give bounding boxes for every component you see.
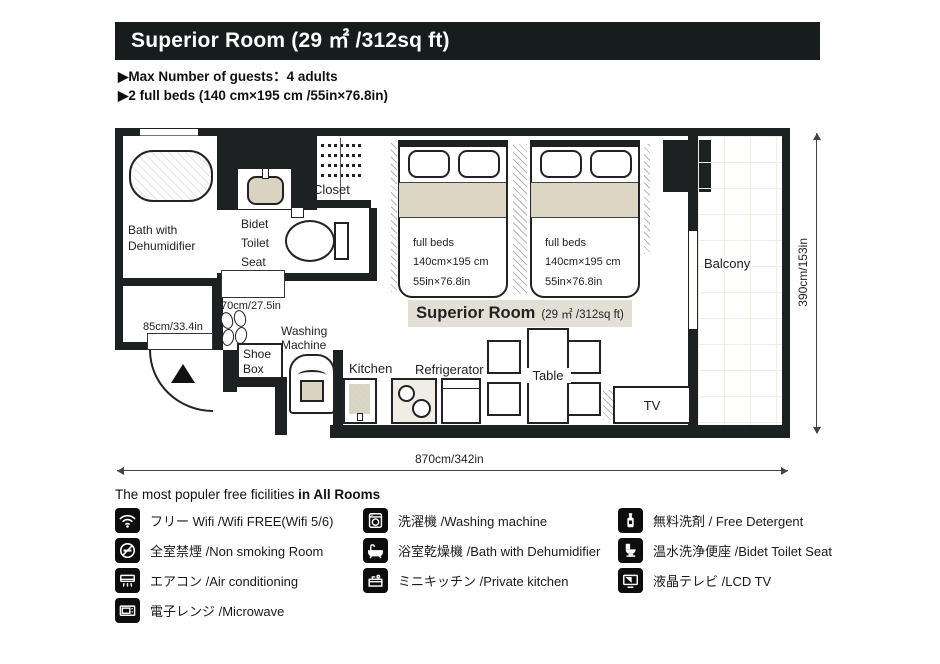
facility-label: エアコン /Air conditioning xyxy=(150,571,298,590)
hatch-strip xyxy=(391,140,397,292)
wall-segment xyxy=(313,200,371,208)
facility-item: 液晶テレビ /LCD TV xyxy=(618,565,832,595)
shoe-box: Shoe Box xyxy=(237,343,283,379)
wifi-icon xyxy=(115,508,140,533)
basin-bowl xyxy=(247,176,284,205)
pillow xyxy=(408,150,450,178)
bed-spec: full beds 140cm×195 cm 55in×76.8in xyxy=(413,234,489,292)
dimension-arrow xyxy=(117,467,124,475)
bed: full beds 140cm×195 cm 55in×76.8in xyxy=(398,140,508,298)
facility-label: 洗濯機 /Washing machine xyxy=(398,511,547,530)
pillow xyxy=(540,150,582,178)
bed: full beds 140cm×195 cm 55in×76.8in xyxy=(530,140,640,298)
wall-segment xyxy=(369,208,377,281)
closet-hangers xyxy=(321,164,361,167)
facility-label: 液晶テレビ /LCD TV xyxy=(653,571,771,590)
max-guests-text: ▶Max Number of guests：4 adults xyxy=(118,65,338,85)
facility-label: 電子レンジ /Microwave xyxy=(150,601,284,620)
width-dimension-line xyxy=(117,470,788,471)
facilities-heading-bold: in All Rooms xyxy=(298,487,380,502)
room-name-label: Superior Room (29 ㎡ /312sq ft) xyxy=(408,300,632,327)
facility-label: 温水洗浄便座 /Bidet Toilet Seat xyxy=(653,541,832,560)
wall-segment xyxy=(330,425,790,438)
bidet-room-label: Bidet Toilet Seat xyxy=(241,215,269,273)
bed-spec-line: 140cm×195 cm xyxy=(413,253,489,272)
headboard xyxy=(530,140,640,147)
wall-segment xyxy=(223,350,237,392)
tv: TV xyxy=(613,386,691,424)
wall-segment xyxy=(115,128,790,136)
facility-label: 全室禁煙 /Non smoking Room xyxy=(150,541,323,560)
balcony-label: Balcony xyxy=(704,256,750,271)
facilities-heading-normal: The most populer free ficilities xyxy=(115,487,298,502)
hatch-strip xyxy=(513,144,527,294)
wall-segment xyxy=(115,278,123,350)
no-smoking-icon xyxy=(115,538,140,563)
dimension-arrow xyxy=(813,133,821,140)
washer-basket xyxy=(300,380,324,402)
wall-segment xyxy=(782,128,790,438)
closet-hangers xyxy=(321,174,361,177)
facilities-column-2: 洗濯機 /Washing machine 浴室乾燥機 /Bath with De… xyxy=(363,505,600,595)
toilet xyxy=(285,220,335,262)
facility-item: フリー Wifi /Wifi FREE(Wifi 5/6) xyxy=(115,505,333,535)
refrigerator-label: Refrigerator xyxy=(415,362,484,377)
wall-segment xyxy=(115,128,123,286)
facility-item: 電子レンジ /Microwave xyxy=(115,595,333,625)
balcony-window xyxy=(688,231,698,329)
facility-label: フリー Wifi /Wifi FREE(Wifi 5/6) xyxy=(150,511,333,530)
washing-machine-label: Washing Machine xyxy=(281,325,341,353)
floor-plan: Bath with Dehumidifier Closet Bidet Toil… xyxy=(115,128,790,438)
bed-spec-line: full beds xyxy=(413,234,489,253)
toilet-door xyxy=(221,270,285,298)
wall-segment xyxy=(115,342,149,350)
closet-hangers xyxy=(321,154,361,157)
dimension-arrow xyxy=(781,467,788,475)
pillow xyxy=(458,150,500,178)
room-floorplan-page: Superior Room (29 ㎡ /312sq ft) ▶Max Numb… xyxy=(0,0,940,664)
air-conditioner-icon xyxy=(115,568,140,593)
bathtub xyxy=(129,150,213,202)
page-title-text: Superior Room (29 ㎡ /312sq ft) xyxy=(131,29,450,52)
entrance-arrow xyxy=(171,364,195,383)
page-title: Superior Room (29 ㎡ /312sq ft) xyxy=(115,22,820,60)
closet-hangers xyxy=(321,144,361,147)
facilities-column-1: フリー Wifi /Wifi FREE(Wifi 5/6) 全室禁煙 /Non … xyxy=(115,505,333,625)
refrigerator-door-line xyxy=(443,388,479,389)
facility-label: 無料洗剤 / Free Detergent xyxy=(653,511,803,530)
height-dimension-text: 390cm/153in xyxy=(796,238,810,307)
stove-burner xyxy=(398,385,415,402)
bed-spec: full beds 140cm×195 cm 55in×76.8in xyxy=(545,234,621,292)
facility-item: 浴室乾燥機 /Bath with Dehumidifier xyxy=(363,535,600,565)
room-name: Superior Room xyxy=(416,304,535,323)
facility-item: 温水洗浄便座 /Bidet Toilet Seat xyxy=(618,535,832,565)
height-dimension-line xyxy=(816,133,817,433)
slipper xyxy=(221,328,236,347)
bed-spec-line: full beds xyxy=(545,234,621,253)
facility-item: エアコン /Air conditioning xyxy=(115,565,333,595)
chair xyxy=(567,382,601,416)
blanket xyxy=(399,182,506,218)
washing-machine xyxy=(289,354,335,414)
kitchen-sink-unit xyxy=(343,378,377,424)
facility-item: 全室禁煙 /Non smoking Room xyxy=(115,535,333,565)
bed-spec-line: 55in×76.8in xyxy=(413,273,489,292)
bidet-toilet-icon xyxy=(618,538,643,563)
chair xyxy=(487,340,521,374)
microwave-icon xyxy=(115,598,140,623)
slipper xyxy=(232,309,248,328)
kitchen-label: Kitchen xyxy=(349,361,392,376)
washer-lid xyxy=(298,370,326,380)
hatch-strip xyxy=(644,144,650,254)
kitchen-icon xyxy=(363,568,388,593)
detergent-icon xyxy=(618,508,643,533)
room-size: (29 ㎡ /312sq ft) xyxy=(541,306,623,322)
bed-spec-line: 140cm×195 cm xyxy=(545,253,621,272)
facilities-heading: The most populer free ficilities in All … xyxy=(115,487,380,502)
balcony-floor xyxy=(698,136,782,425)
lcd-tv-icon xyxy=(618,568,643,593)
facility-item: ミニキッチン /Private kitchen xyxy=(363,565,600,595)
wash-basin xyxy=(237,168,292,210)
facilities-column-3: 無料洗剤 / Free Detergent 温水洗浄便座 /Bidet Toil… xyxy=(618,505,832,595)
closet-label: Closet xyxy=(313,182,350,197)
facility-item: 無料洗剤 / Free Detergent xyxy=(618,505,832,535)
slipper xyxy=(219,311,235,330)
bidet-label-line: Toilet xyxy=(241,234,269,253)
stove-burner xyxy=(412,399,431,418)
bed-spec-text: ▶2 full beds (140 cm×195 cm /55in×76.8in… xyxy=(118,88,388,104)
kitchen-sink xyxy=(349,384,370,414)
width-dimension-text: 870cm/342in xyxy=(415,452,484,466)
hatch-strip xyxy=(603,390,613,420)
bidet-label-line: Bidet xyxy=(241,215,269,234)
bed-spec-line: 55in×76.8in xyxy=(545,273,621,292)
refrigerator xyxy=(441,378,481,424)
entrance-dimension: 85cm/33.4in xyxy=(143,321,203,333)
basin-faucet xyxy=(262,168,269,179)
chair xyxy=(567,340,601,374)
entrance-door-frame xyxy=(147,333,213,350)
facility-label: 浴室乾燥機 /Bath with Dehumidifier xyxy=(398,541,600,560)
window-gap xyxy=(140,129,198,136)
bath-room-label: Bath with Dehumidifier xyxy=(128,222,220,254)
blanket xyxy=(531,182,638,218)
bathtub-icon xyxy=(363,538,388,563)
headboard xyxy=(398,140,508,147)
facility-item: 洗濯機 /Washing machine xyxy=(363,505,600,535)
kitchen-faucet xyxy=(357,413,363,421)
stove xyxy=(391,378,437,424)
wall-segment xyxy=(275,377,287,435)
wall-segment xyxy=(115,278,227,286)
pillow xyxy=(590,150,632,178)
facility-label: ミニキッチン /Private kitchen xyxy=(398,571,569,590)
toilet-paper-holder xyxy=(291,207,304,218)
washing-machine-icon xyxy=(363,508,388,533)
dimension-arrow xyxy=(813,427,821,434)
toilet-tank xyxy=(334,222,349,260)
chair xyxy=(487,382,521,416)
table-label: Table xyxy=(525,368,571,383)
